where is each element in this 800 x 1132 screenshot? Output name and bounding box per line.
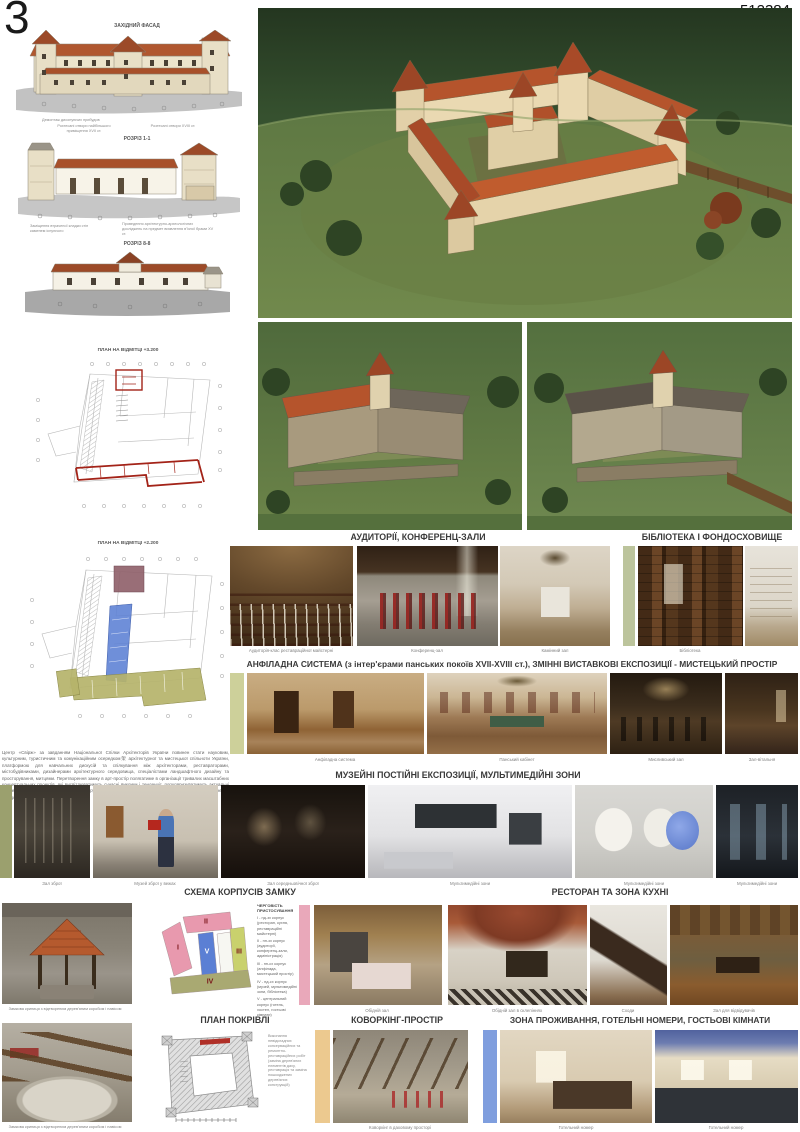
schema-block-label-3: ІІІ — [236, 949, 242, 956]
schema-legend-item: І - пд-зх корпус (ресторан, кухня, реста… — [257, 915, 297, 935]
photo-conference-hall — [357, 546, 498, 646]
schema-legend: ЧЕРГОВІСТЬ ПРИСТОСУВАННЯ І - пд-зх корпу… — [257, 903, 297, 1019]
roof-plan-drawing — [150, 1028, 263, 1123]
caption-coworking: Коворкінг в даховому просторі — [369, 1125, 431, 1130]
caption-hotel-room-2: Готельний номер — [709, 1125, 744, 1130]
schema-block-label-1: І — [177, 945, 179, 952]
schema-legend-item: ІІІ - пн-сх корпус (анфілада, мистецький… — [257, 961, 297, 976]
caption-fireplace-hall: Камінний зал — [542, 648, 569, 653]
section1-note-left: Розтесані отвори найбільшого приміщення … — [48, 124, 120, 134]
photo-staircase — [590, 905, 667, 1005]
accent-strip-olive — [0, 785, 12, 878]
photo-vaulted-dining-hall — [448, 905, 587, 1005]
schema-block-label-2: ІІ — [204, 919, 208, 926]
accent-strip-olive-light — [230, 673, 244, 754]
well-canopy — [2, 903, 132, 1004]
photo-archive-room — [745, 546, 798, 646]
schema-legend-item: ІІ - пн-зх корпус (аудиторії, конференц-… — [257, 938, 297, 958]
photo-medieval-armor — [221, 785, 365, 878]
schema-legend-item: V - центральний корпус (готель, хостел, … — [257, 996, 297, 1016]
section-title-schema: СХЕМА КОРПУСІВ ЗАМКУ — [184, 887, 296, 897]
section-title-auditoriums: АУДИТОРІЇ, КОНФЕРЕНЦ-ЗАЛИ — [350, 532, 485, 542]
accent-strip-blue — [483, 1030, 497, 1123]
photo-coworking-attic — [333, 1030, 468, 1123]
roof-plan-note: Виконання невідкладних консерваційних та… — [268, 1034, 310, 1088]
section-title-restaurant: РЕСТОРАН ТА ЗОНА КУХНІ — [552, 887, 669, 897]
section-title-coworking: КОВОРКІНГ-ПРОСТІР — [351, 1015, 443, 1025]
courtyard-render-right-svg — [527, 322, 792, 530]
photo-glass-steles — [716, 785, 798, 878]
facade-drawing — [10, 30, 248, 118]
photo-living-hall — [725, 673, 798, 754]
photo-multimedia-room — [368, 785, 572, 878]
section8-title: РОЗРІЗ 8-8 — [124, 241, 151, 247]
photo-lords-cabinet — [427, 673, 607, 754]
photo-hunting-hall — [610, 673, 722, 754]
section-1-1-drawing — [10, 142, 248, 222]
blue-disc-exhibit — [666, 811, 699, 850]
accent-strip-pink — [299, 905, 310, 1005]
caption-weapons-museum: Музей зброї у вежах — [134, 881, 175, 886]
schema-legend-item: IV - пд-сх корпус (музей, мультимедійні … — [257, 979, 297, 994]
section-title-library: БІБЛІОТЕКА І ФОНДОСХОВИЩЕ — [642, 532, 782, 542]
caption-conference: Конференц-зал — [411, 648, 443, 653]
plan-upper-drawing — [28, 356, 228, 524]
plan-upper-title: ПЛАН НА ВІДМІТЦІ +3.200 — [98, 348, 159, 353]
caption-hunting-hall: Мисливський зал — [648, 757, 683, 762]
caption-medieval-armor: Зал середньовічної зброї — [267, 881, 319, 886]
caption-cabinet: Панський кабінет — [499, 757, 534, 762]
photo-armory-hall — [14, 785, 90, 878]
person-figure — [158, 809, 174, 867]
facade-title: ЗАХІДНИЙ ФАСАД — [114, 23, 160, 29]
photo-auditorium-class — [230, 546, 353, 646]
caption-library: Бібліотека — [680, 648, 701, 653]
castle-aerial-render — [258, 8, 792, 318]
plan-lower-drawing — [22, 550, 234, 748]
courtyard-render-right — [527, 322, 792, 530]
photo-weapons-museum — [93, 785, 218, 878]
photo-well-closeup — [2, 1023, 132, 1122]
caption-stairs: Сходи — [622, 1008, 635, 1013]
photo-dining-kitchen — [314, 905, 442, 1005]
photo-sculpture-heads — [575, 785, 713, 878]
section-title-enfilade: АНФІЛАДНА СИСТЕМА (з інтер'єрами панськи… — [247, 659, 778, 669]
section1-note-bottom-right: Проведення архітектурно-археологічних до… — [122, 222, 214, 237]
courtyard-render-left — [258, 322, 522, 530]
photo-hotel-room-1 — [500, 1030, 652, 1123]
accent-strip-tan — [315, 1030, 330, 1123]
schema-block-label-4: IV — [207, 979, 214, 986]
caption-multimedia-2: Мультимедійні зони — [624, 881, 664, 886]
schema-legend-title: ЧЕРГОВІСТЬ ПРИСТОСУВАННЯ — [257, 903, 297, 913]
caption-living-hall: Зал-вітальня — [749, 757, 775, 762]
caption-hotel-room-1: Готельний номер — [559, 1125, 594, 1130]
schema-block-label-5: V — [205, 949, 210, 956]
red-exhibit-object — [148, 820, 161, 829]
accent-strip-sage — [623, 546, 635, 646]
section-title-hotel: ЗОНА ПРОЖИВАННЯ, ГОТЕЛЬНІ НОМЕРИ, ГОСТЬО… — [510, 1015, 770, 1025]
courtyard-render-left-svg — [258, 322, 522, 530]
caption-vaulted-hall: Обідній зал в склепіннях — [492, 1008, 542, 1013]
competition-board: 3 512384 ЗАХІДНИЙ ФАСАД — [0, 0, 800, 1132]
photo-castle-well — [2, 903, 132, 1004]
caption-multimedia-1: Мультимедійні зони — [450, 881, 490, 886]
photo-panelled-hall — [670, 905, 798, 1005]
caption-visitors-hall: Зал для відвідувачів — [713, 1008, 755, 1013]
photo-fireplace-hall — [500, 546, 610, 646]
photo-hotel-room-2 — [655, 1030, 798, 1123]
caption-well-top: Замкова криниця з відтвореним дерев'яним… — [9, 1006, 122, 1011]
castle-aerial-render-svg — [258, 8, 792, 318]
photo-library — [638, 546, 743, 646]
section1-note-bottom-left: Заміщення втраченої кладки стін каменем … — [30, 224, 102, 234]
section-title-roof-plan: ПЛАН ПОКРІВЛІ — [200, 1015, 269, 1025]
section-title-museum: МУЗЕЙНІ ПОСТІЙНІ ЕКСПОЗИЦІЇ, МУЛЬТИМЕДІЙ… — [335, 770, 580, 780]
caption-enfilade: Анфіладна система — [315, 757, 355, 762]
facade-note: Демонтаж дисонуючих прибудов — [42, 118, 112, 123]
caption-well-bottom: Замкова криниця з відтвореним дерев'яним… — [9, 1124, 122, 1129]
section1-note-right: Розтесані отвори XVIII ст. — [142, 124, 204, 129]
plan-lower-title: ПЛАН НА ВІДМІТЦІ +2.200 — [98, 541, 159, 546]
caption-auditorium: Аудиторія-клас реставраційної майстерні — [249, 648, 333, 653]
caption-multimedia-3: Мультимедійні зони — [737, 881, 777, 886]
caption-armory: Зал зброї — [42, 881, 61, 886]
section-8-8-drawing — [15, 250, 240, 318]
caption-dining-hall: Обідній зал — [365, 1008, 389, 1013]
photo-enfilade — [247, 673, 424, 754]
